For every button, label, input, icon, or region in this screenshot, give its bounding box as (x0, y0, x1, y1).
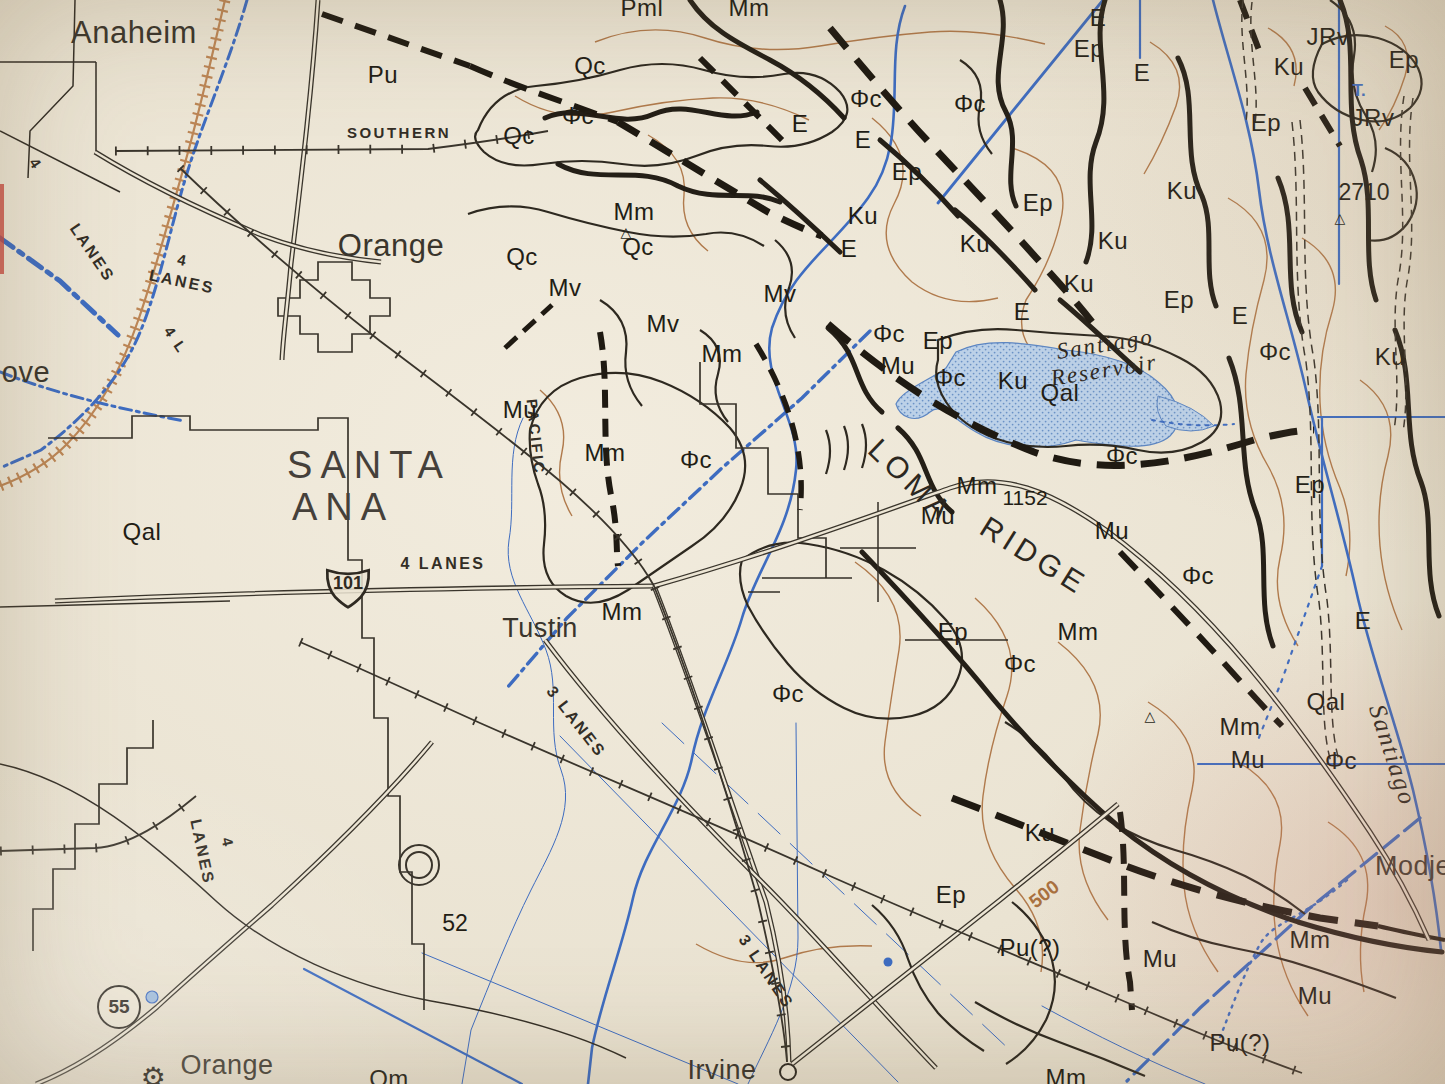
map-label-mv: Mv (549, 276, 582, 300)
map-label-ove: ove (2, 358, 50, 387)
map-label-e: E (1090, 6, 1107, 30)
map-label-ep: Ep (1251, 111, 1281, 135)
map-label-c: Φc (562, 104, 594, 128)
map-label-ep: Ep (892, 160, 922, 184)
map-label-mu: Mu (1298, 984, 1332, 1008)
us-route-number: 101 (321, 562, 375, 611)
map-label-c: Φc (934, 366, 966, 390)
map-label-jrv: JRv (1307, 25, 1350, 49)
map-label-pu: Pu(?) (999, 936, 1060, 960)
map-label-ep: Ep (1023, 191, 1053, 215)
map-label-4-l: 4 L (162, 324, 191, 357)
map-label-e: E (1355, 609, 1372, 633)
map-label-: △ (1145, 709, 1156, 723)
map-label-ku: Ku (960, 232, 990, 256)
map-label-mu: Mu (1095, 519, 1129, 543)
map-label-qc: Qc (574, 54, 606, 78)
map-label-mm: Mm (957, 474, 998, 498)
map-label-ku: Ku (1025, 821, 1055, 845)
map-label-mu: Mu (1231, 748, 1265, 772)
state-route-number: 55 (108, 996, 129, 1018)
map-label-4-lanes: 4 LANES (400, 556, 485, 572)
map-label-ku: Ku (1375, 345, 1405, 369)
map-label-c: Φc (1004, 652, 1036, 676)
map-label-ep: Ep (1295, 473, 1325, 497)
map-label-ep: Ep (923, 329, 953, 353)
map-label-mu: Mu (1143, 947, 1177, 971)
map-label-e: E (792, 112, 809, 136)
labels-layer: AnaheimOrangeSANTAANATustinIrvineOrangeM… (0, 0, 1445, 1084)
map-label-mm: Mm (1220, 715, 1261, 739)
map-label-e: E (855, 128, 872, 152)
map-label-c: Φc (1259, 340, 1291, 364)
map-label-mm: Mm (729, 0, 770, 20)
map-label-santiago: Santiago (1365, 701, 1421, 808)
map-label-c: Φc (772, 682, 804, 706)
map-label-: △ (1335, 211, 1346, 225)
map-label-52: 52 (442, 912, 468, 935)
map-label-e: E (1134, 61, 1151, 85)
map-label-mm: Mm (1058, 620, 1099, 644)
map-label-ep: Ep (1164, 288, 1194, 312)
map-label-ku: Ku (1098, 229, 1128, 253)
red-edge-mark (0, 184, 4, 274)
map-label-modjes: Modjes (1375, 853, 1445, 880)
map-label-mm: Mm (702, 342, 743, 366)
map-label-4: 4 (176, 252, 190, 269)
map-label-1152: 1152 (1002, 487, 1047, 508)
map-label-: △ (621, 225, 632, 239)
map-photo: AnaheimOrangeSANTAANATustinIrvineOrangeM… (0, 0, 1445, 1084)
map-label-pu: Pu(?) (1209, 1031, 1270, 1055)
map-label-jrv: JRv (1352, 106, 1395, 130)
map-label-ku: Ku (1274, 55, 1304, 79)
map-label-mm: Mm (1046, 1066, 1087, 1084)
map-label-c: Φc (1325, 749, 1357, 773)
map-label-4: 4 (220, 836, 237, 850)
map-label-ku: Ku (1167, 179, 1197, 203)
map-label-mu: Mu (503, 398, 537, 422)
map-label-ep: Ep (936, 883, 966, 907)
state-route-55-shield: 55 (97, 985, 141, 1029)
map-label-ku: Ku (1064, 272, 1094, 296)
map-label-3-lanes: 3 LANES (544, 684, 609, 761)
map-label-pu: Pu (368, 63, 398, 87)
map-label-mm: Mm (602, 600, 643, 624)
map-label-ku: Ku (848, 204, 878, 228)
map-label-ku: Ku (998, 369, 1028, 393)
map-label-lanes: LANES (187, 818, 217, 887)
map-label-lanes: LANES (67, 221, 118, 285)
map-label-ep: Ep (1389, 48, 1419, 72)
map-label-mv: Mv (647, 312, 680, 336)
map-label-c: Φc (1182, 564, 1214, 588)
map-label-loma: LOMA (863, 434, 959, 529)
map-label-3-lanes: 3 LANES (736, 932, 797, 1011)
map-label-mu: Mu (881, 354, 915, 378)
map-label-c: Φc (1106, 444, 1138, 468)
map-label-t: T. (1352, 82, 1365, 99)
map-label-qm: Qm (369, 1067, 409, 1084)
map-label-mm: Mm (1290, 928, 1331, 952)
map-label-ep: Ep (938, 620, 968, 644)
map-label-ep: Ep (1074, 37, 1104, 61)
map-label-2710: 2710 (1338, 181, 1389, 204)
map-label-santa: SANTA (287, 446, 451, 484)
map-label-c: Φc (680, 448, 712, 472)
map-label-e: E (1232, 304, 1249, 328)
map-label-c: Φc (873, 322, 905, 346)
map-label-4: 4 (27, 155, 45, 172)
map-label-mv: Mv (764, 282, 797, 306)
map-label-qal: Qal (1307, 690, 1346, 714)
map-label-southern: SOUTHERN (347, 125, 451, 140)
map-label-mm: Mm (614, 200, 655, 224)
map-label-: ⚙ (140, 1064, 165, 1084)
map-label-qc: Qc (503, 124, 535, 148)
map-label-e: E (841, 237, 858, 261)
map-label-lanes: LANES (148, 267, 217, 297)
map-label-e: E (1014, 300, 1031, 324)
map-label-tustin: Tustin (502, 615, 578, 642)
map-label-c: Φc (850, 87, 882, 111)
map-label-ridge: RIDGE (975, 511, 1093, 600)
map-label-qc: Qc (506, 245, 538, 269)
map-label-qal: Qal (123, 520, 162, 544)
map-label-500: 500 (1026, 877, 1063, 911)
map-label-ana: ANA (292, 488, 394, 526)
map-label-orange: Orange (180, 1052, 273, 1079)
map-label-irvine: Irvine (687, 1057, 756, 1084)
map-label-mm: Mm (585, 441, 626, 465)
map-label-orange: Orange (338, 230, 444, 261)
map-label-anaheim: Anaheim (71, 17, 197, 48)
map-label-c: Φc (954, 92, 986, 116)
us-route-101-shield: 101 (321, 562, 375, 611)
map-label-pml: Pml (621, 0, 664, 20)
